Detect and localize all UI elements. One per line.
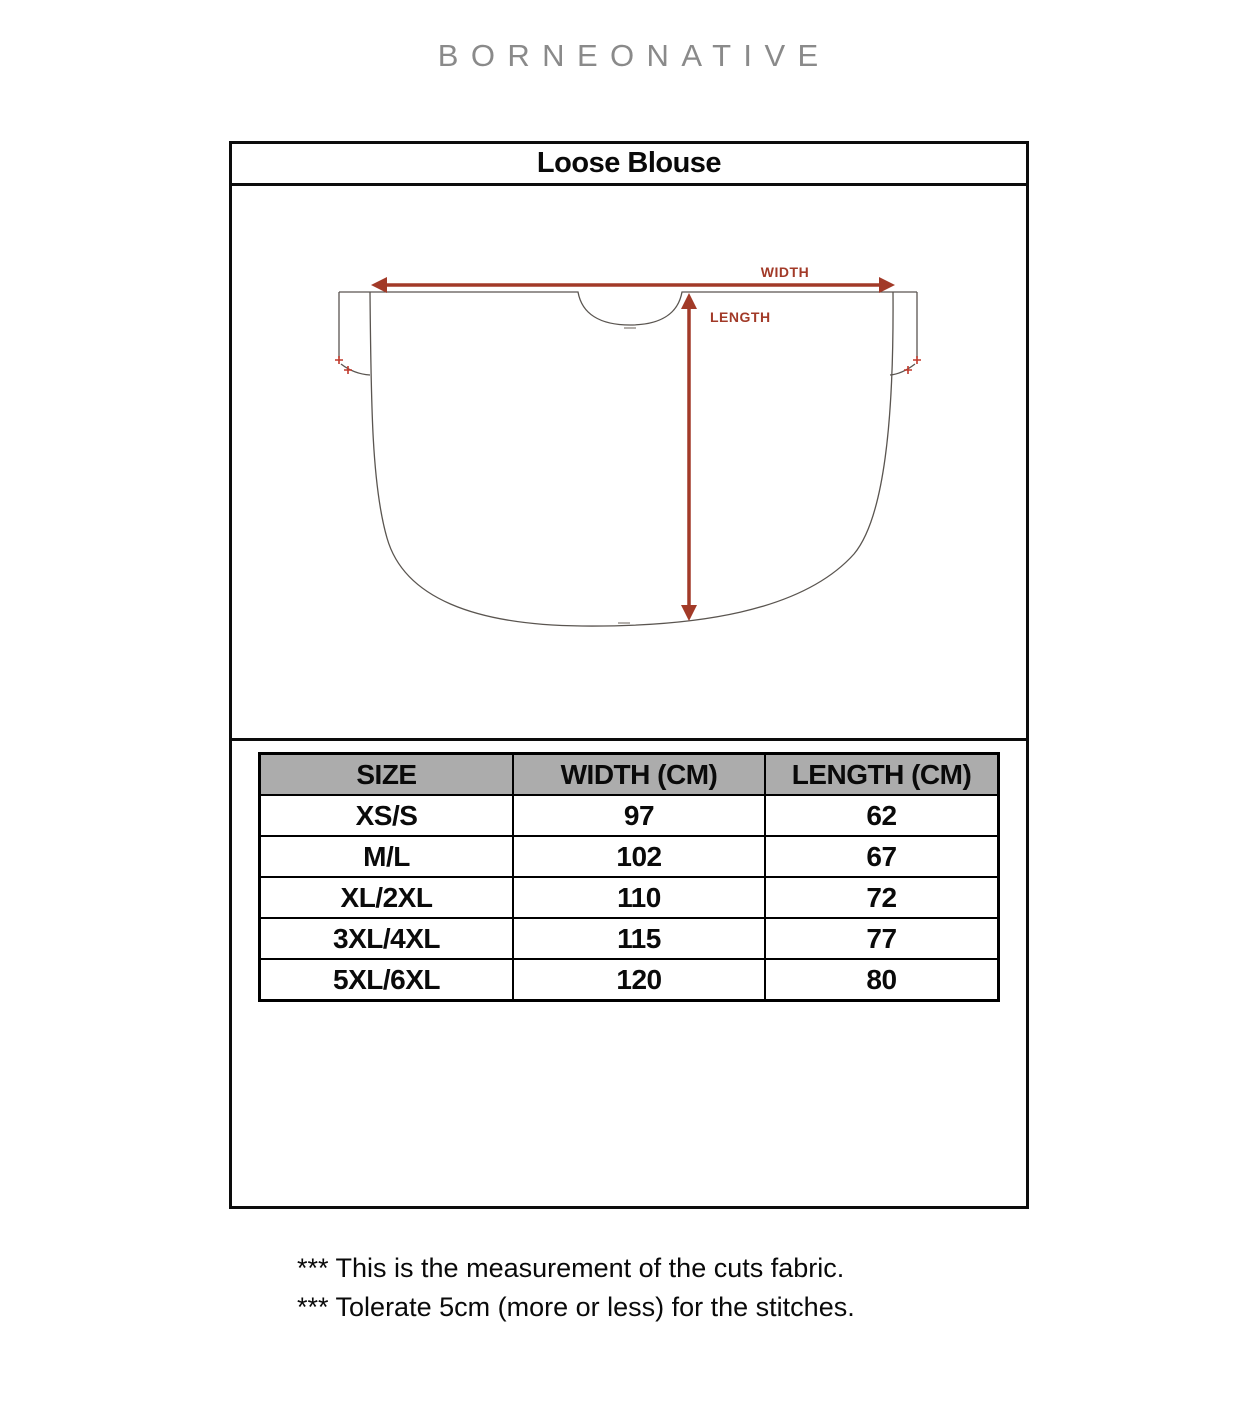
cell-length: 72 [765, 877, 999, 918]
cell-width: 110 [513, 877, 765, 918]
product-title: Loose Blouse [537, 147, 721, 180]
cell-width: 97 [513, 795, 765, 836]
width-arrow [371, 277, 895, 293]
cell-size: M/L [260, 836, 514, 877]
table-row: XS/S 97 62 [260, 795, 999, 836]
footnote-line: *** Tolerate 5cm (more or less) for the … [297, 1288, 855, 1327]
cell-length: 80 [765, 959, 999, 1001]
table-row: M/L 102 67 [260, 836, 999, 877]
cell-size: 5XL/6XL [260, 959, 514, 1001]
header-length: LENGTH (CM) [765, 754, 999, 796]
size-table-wrap: SIZE WIDTH (CM) LENGTH (CM) XS/S 97 62 M… [258, 752, 1000, 1002]
cell-length: 62 [765, 795, 999, 836]
width-label: WIDTH [761, 264, 809, 280]
sheet-title-bar: Loose Blouse [232, 144, 1026, 186]
cell-length: 77 [765, 918, 999, 959]
table-row: 5XL/6XL 120 80 [260, 959, 999, 1001]
cell-length: 67 [765, 836, 999, 877]
width-arrowhead-right [879, 277, 895, 293]
brand-title: BORNEONATIVE [0, 38, 1256, 74]
blouse-outline [339, 292, 917, 626]
header-width: WIDTH (CM) [513, 754, 765, 796]
cell-width: 115 [513, 918, 765, 959]
header-size: SIZE [260, 754, 514, 796]
footnote-line: *** This is the measurement of the cuts … [297, 1249, 855, 1288]
cell-width: 120 [513, 959, 765, 1001]
table-row: XL/2XL 110 72 [260, 877, 999, 918]
cell-size: 3XL/4XL [260, 918, 514, 959]
size-table-header-row: SIZE WIDTH (CM) LENGTH (CM) [260, 754, 999, 796]
length-label: LENGTH [710, 309, 771, 325]
blouse-diagram-svg: WIDTH LENGTH [232, 186, 1026, 738]
cell-size: XL/2XL [260, 877, 514, 918]
length-arrowhead-top [681, 293, 697, 309]
size-chart-page: BORNEONATIVE Loose Blouse [0, 0, 1256, 1426]
length-arrow [681, 293, 697, 621]
cell-width: 102 [513, 836, 765, 877]
length-arrowhead-bottom [681, 605, 697, 621]
width-arrowhead-left [371, 277, 387, 293]
measurement-diagram: WIDTH LENGTH [232, 186, 1026, 741]
table-row: 3XL/4XL 115 77 [260, 918, 999, 959]
seam-marks [335, 356, 921, 374]
size-chart-sheet: Loose Blouse [229, 141, 1029, 1209]
size-table: SIZE WIDTH (CM) LENGTH (CM) XS/S 97 62 M… [258, 752, 1000, 1002]
footnotes: *** This is the measurement of the cuts … [297, 1249, 855, 1327]
cell-size: XS/S [260, 795, 514, 836]
